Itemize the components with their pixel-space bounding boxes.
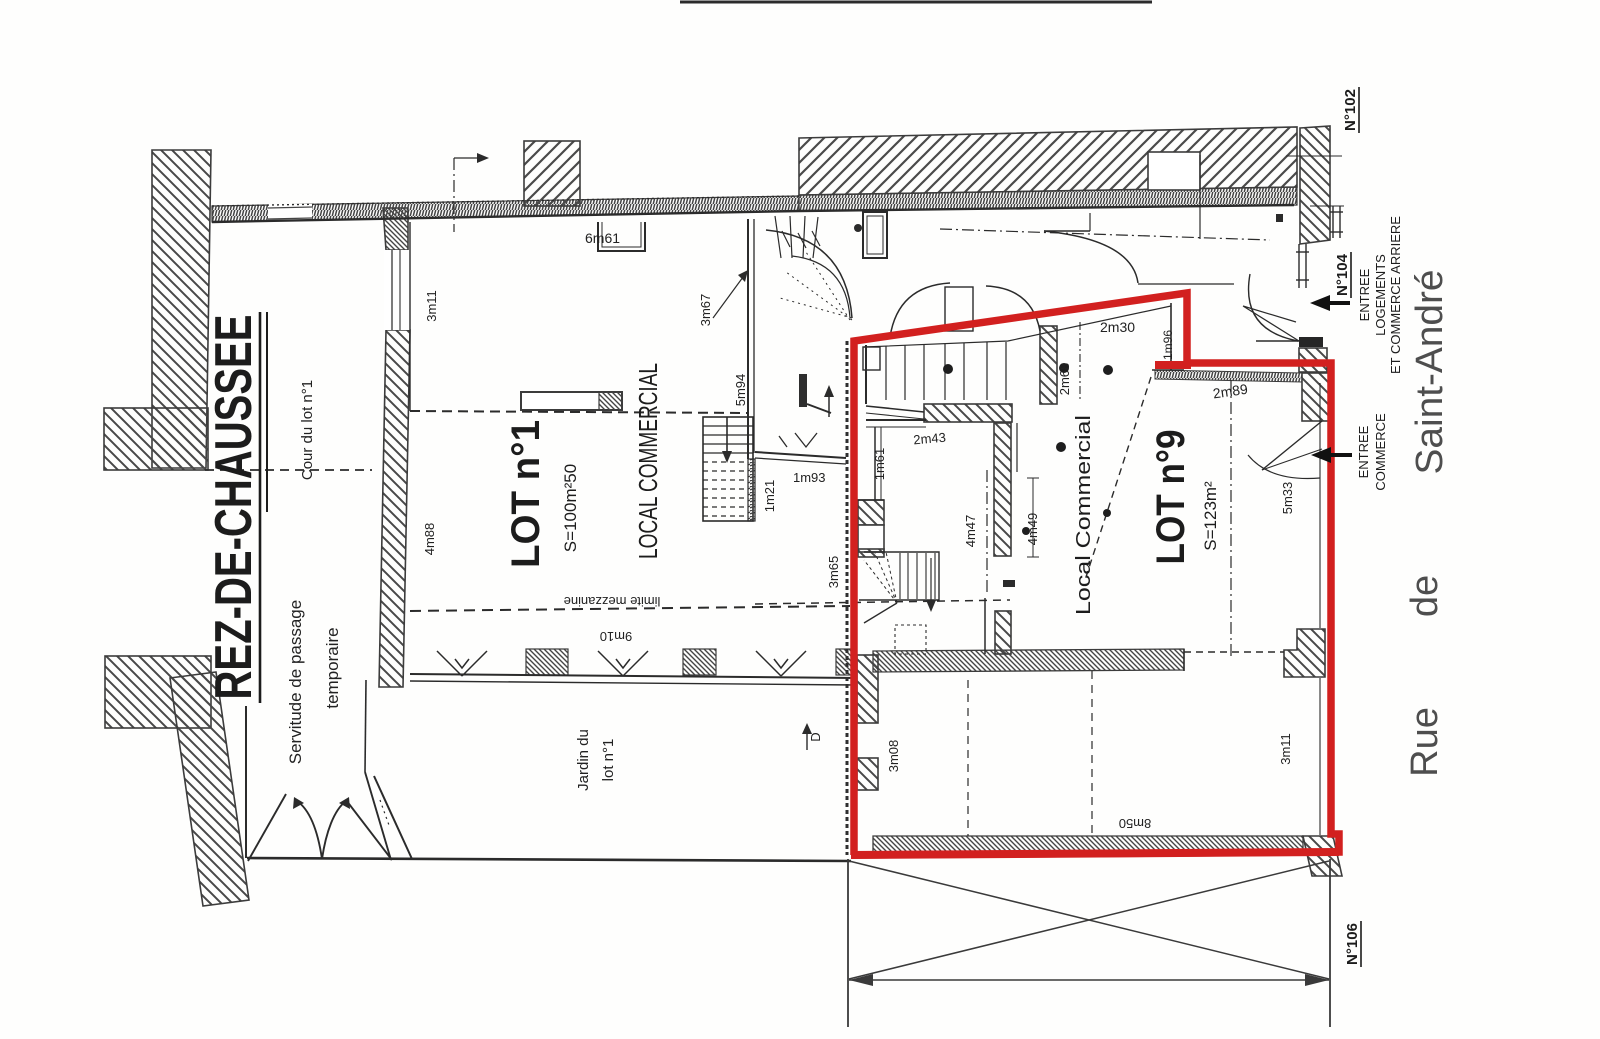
svg-text:Jardin du: Jardin du	[575, 729, 592, 791]
svg-text:1m61: 1m61	[872, 448, 887, 481]
svg-text:3m67: 3m67	[698, 294, 713, 327]
svg-text:9m10: 9m10	[600, 629, 633, 644]
svg-text:2m43: 2m43	[913, 430, 947, 448]
svg-text:3m08: 3m08	[886, 740, 901, 773]
svg-text:4m47: 4m47	[963, 515, 978, 548]
svg-text:8m50: 8m50	[1119, 816, 1152, 831]
svg-text:Servitude de passage: Servitude de passage	[286, 600, 305, 764]
svg-text:4m88: 4m88	[422, 523, 437, 556]
svg-text:N°106: N°106	[1344, 923, 1361, 965]
svg-text:COMMERCE: COMMERCE	[1373, 413, 1388, 491]
svg-text:Rue: Rue	[1404, 707, 1446, 777]
svg-text:LOGEMENTS: LOGEMENTS	[1373, 254, 1388, 336]
svg-text:D: D	[808, 732, 823, 741]
svg-text:ENTREE: ENTREE	[1357, 268, 1372, 321]
svg-text:2m30: 2m30	[1100, 319, 1135, 335]
svg-text:REZ-DE-CHAUSSEE: REZ-DE-CHAUSSEE	[205, 315, 263, 700]
svg-text:temporaire: temporaire	[323, 627, 342, 708]
svg-text:4m49: 4m49	[1025, 513, 1040, 546]
svg-text:3m11: 3m11	[424, 290, 439, 322]
svg-text:LOT n°1: LOT n°1	[504, 420, 548, 568]
svg-text:3m11: 3m11	[1278, 733, 1293, 765]
svg-text:S=100m²50: S=100m²50	[561, 464, 580, 552]
svg-text:ET COMMERCE ARRIERE: ET COMMERCE ARRIERE	[1388, 216, 1403, 374]
svg-text:3m65: 3m65	[826, 556, 841, 589]
svg-text:1m96: 1m96	[1161, 330, 1175, 360]
svg-text:ENTREE: ENTREE	[1356, 425, 1371, 478]
svg-text:Local Commercial: Local Commercial	[1073, 415, 1095, 615]
svg-text:lot n°1: lot n°1	[600, 739, 617, 782]
svg-text:de: de	[1404, 575, 1446, 617]
svg-text:5m94: 5m94	[733, 374, 748, 407]
svg-text:6m61: 6m61	[585, 230, 620, 246]
svg-text:Cour du lot n°1: Cour du lot n°1	[299, 380, 316, 480]
svg-text:LOT n°9: LOT n°9	[1149, 430, 1193, 565]
svg-text:1m21: 1m21	[762, 480, 777, 513]
svg-text:5m33: 5m33	[1280, 482, 1295, 515]
svg-text:2m68: 2m68	[1057, 363, 1072, 396]
svg-text:N°104: N°104	[1334, 253, 1351, 296]
svg-text:1m93: 1m93	[793, 470, 826, 485]
svg-text:limite mezzanine: limite mezzanine	[564, 594, 661, 609]
svg-text:LOCAL COMMERCIAL: LOCAL COMMERCIAL	[633, 363, 663, 559]
svg-text:S=123m²: S=123m²	[1201, 481, 1220, 551]
svg-text:N°102: N°102	[1342, 89, 1359, 131]
svg-text:Saint-André: Saint-André	[1409, 270, 1451, 475]
